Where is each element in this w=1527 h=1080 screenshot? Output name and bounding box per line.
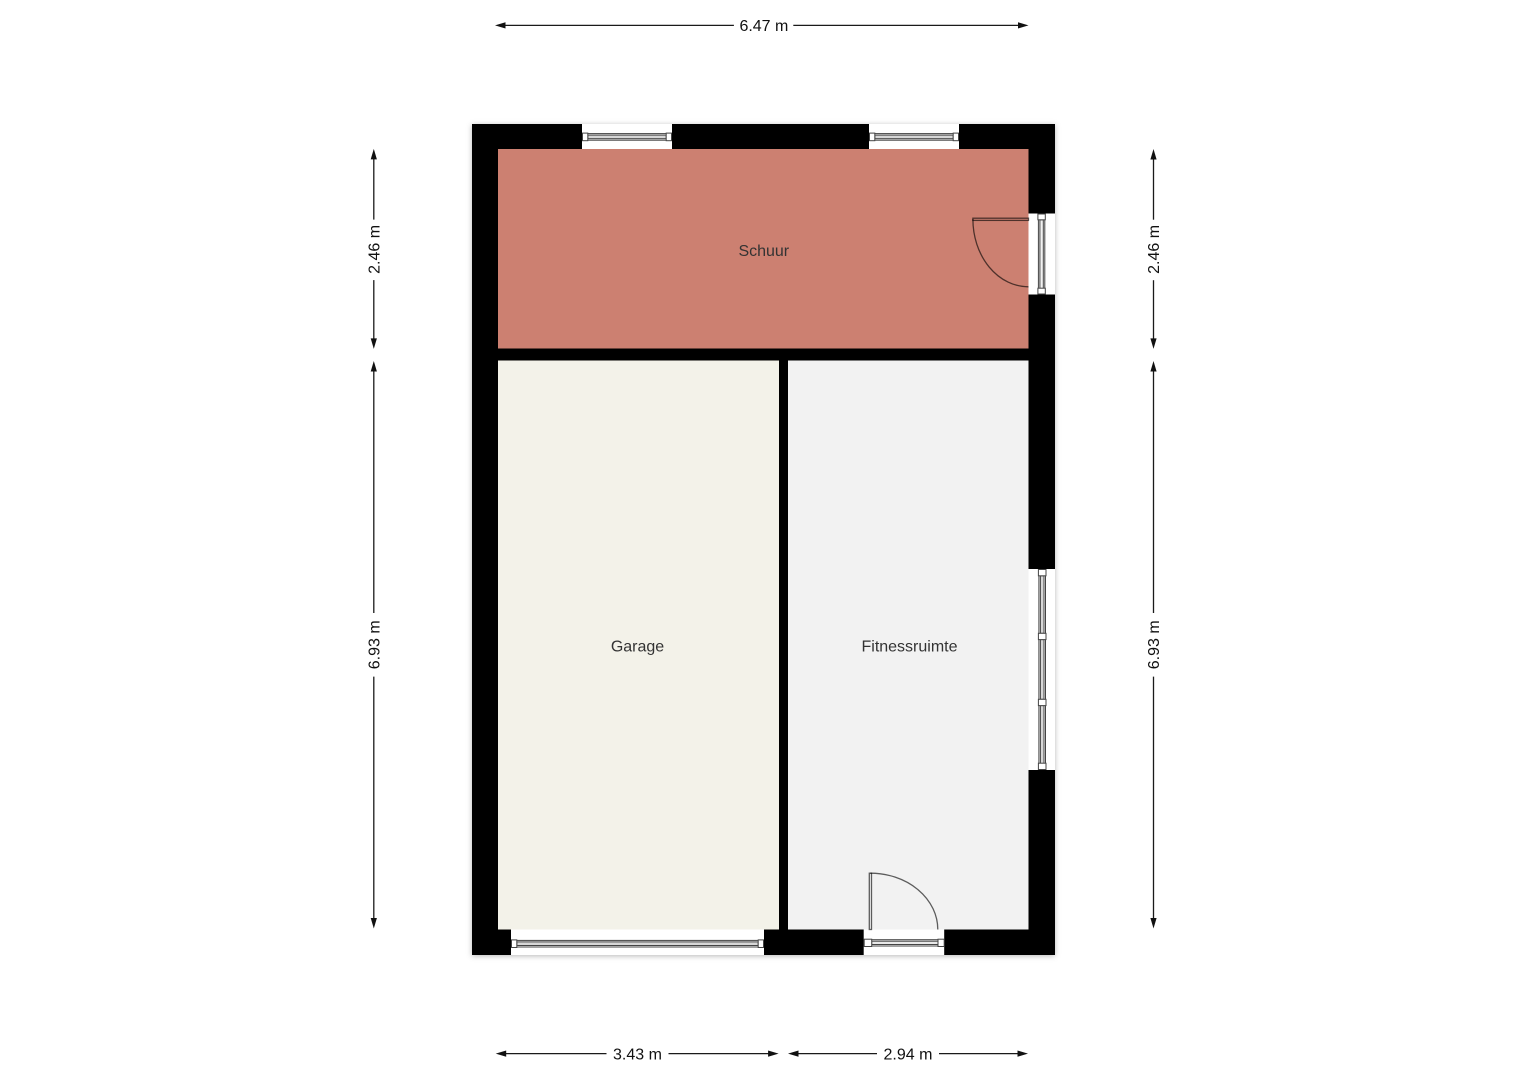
- svg-text:Garage: Garage: [611, 639, 664, 656]
- svg-text:Fitnessruimte: Fitnessruimte: [861, 639, 957, 656]
- svg-text:2.46 m: 2.46 m: [1146, 225, 1163, 274]
- svg-text:Schuur: Schuur: [738, 243, 789, 260]
- svg-text:6.93 m: 6.93 m: [366, 620, 383, 669]
- svg-text:6.93 m: 6.93 m: [1146, 620, 1163, 669]
- svg-text:3.43 m: 3.43 m: [613, 1046, 662, 1063]
- svg-text:2.94 m: 2.94 m: [884, 1046, 933, 1063]
- svg-text:6.47 m: 6.47 m: [739, 18, 788, 35]
- svg-text:2.46 m: 2.46 m: [366, 225, 383, 274]
